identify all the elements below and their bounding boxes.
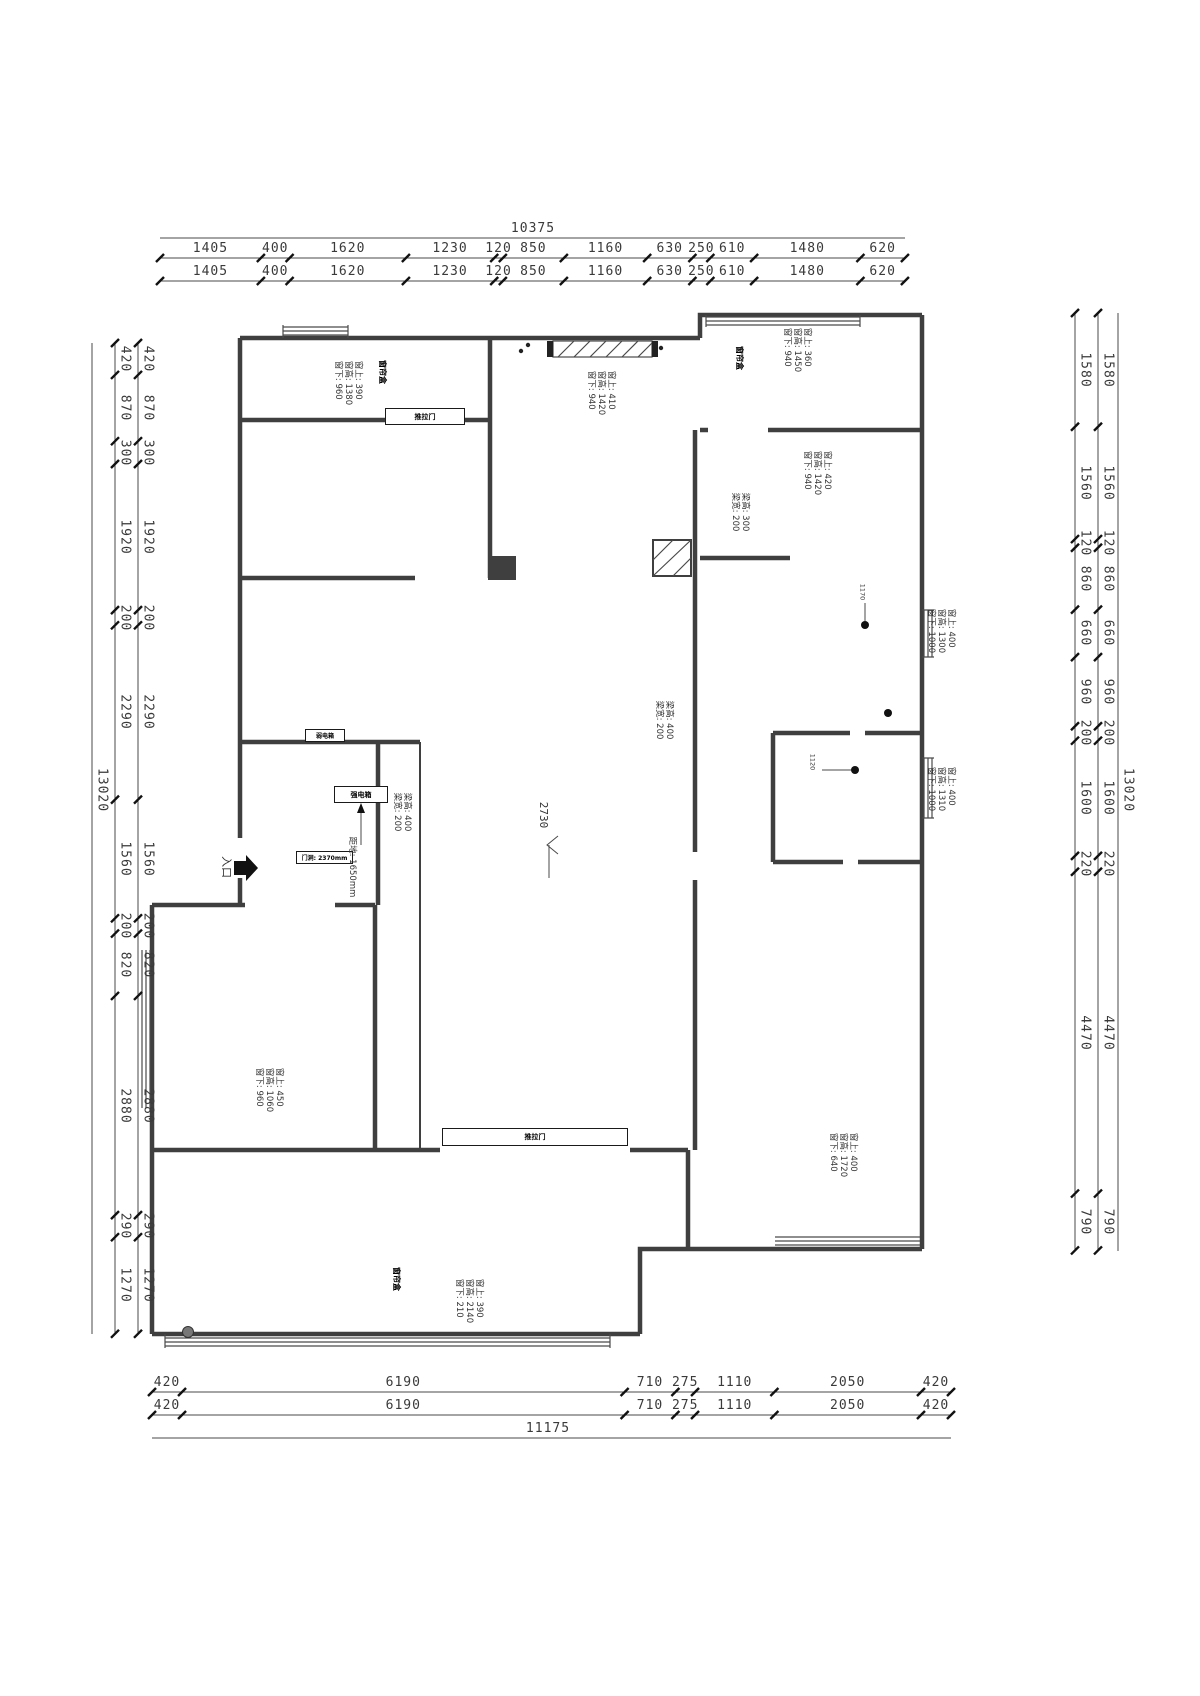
dim-label-top-0-11: 620 <box>869 241 895 256</box>
annotation-beam-center-left: 梁高: 400梁宽: 200 <box>392 793 412 832</box>
dim-label-top-0-1: 400 <box>262 241 288 256</box>
hatched-window-end-right <box>652 341 658 357</box>
dim-label-top-0-4: 120 <box>485 241 511 256</box>
dim-label-right-0-2: 120 <box>1078 530 1093 556</box>
wall-step-bottom <box>640 1150 688 1334</box>
annotation-line: 梁宽: 200 <box>730 493 740 532</box>
annotation-line: 窗上: 400 <box>848 1133 858 1177</box>
annotation-line: 窗下: 960 <box>254 1068 264 1112</box>
dim-total-bottom: 11175 <box>526 1421 570 1436</box>
annotation-line: 1170 <box>859 584 866 601</box>
annotation-line: 窗高: 1380 <box>343 361 353 405</box>
annotation-rm1-window: 窗上: 400窗高: 1300窗下: 1000 <box>926 609 956 653</box>
dim-label-bottom-1-4: 1110 <box>717 1398 752 1413</box>
annotation-br-window: 窗上: 400窗高: 1720窗下: 640 <box>828 1133 858 1177</box>
dim-label-right-1-4: 660 <box>1101 620 1116 646</box>
socket-dot-3 <box>659 346 663 350</box>
dim-label-right-0-5: 960 <box>1078 678 1093 704</box>
annotation-light-dist-2: 1120 <box>809 754 816 771</box>
dim-label-right-1-5: 960 <box>1101 678 1116 704</box>
light-dot-3 <box>884 709 892 717</box>
dim-label-top-0-5: 850 <box>520 241 546 256</box>
annotation-line: 梁高: 400 <box>402 793 412 832</box>
annotation-line: 梁高: 300 <box>740 493 750 532</box>
dim-label-top-1-2: 1620 <box>330 264 365 279</box>
annotation-line: 窗上: 360 <box>802 328 812 372</box>
dim-label-right-1-0: 1580 <box>1101 352 1116 387</box>
dim-label-left-0-8: 820 <box>118 951 133 977</box>
annotation-line: 窗帘盒 <box>377 360 387 384</box>
dim-label-bottom-0-6: 420 <box>923 1375 949 1390</box>
dim-label-bottom-0-4: 1110 <box>717 1375 752 1390</box>
annotation-line: 窗高: 1720 <box>838 1133 848 1177</box>
annotation-line: 窗上: 400 <box>946 767 956 811</box>
annotation-line: 窗高: 1420 <box>812 451 822 495</box>
light-dot-2 <box>851 766 859 774</box>
light-dot-1 <box>861 621 869 629</box>
dim-label-top-0-2: 1620 <box>330 241 365 256</box>
sliding-door-label-top: 推拉门 <box>385 408 465 425</box>
dim-label-top-0-7: 630 <box>657 241 683 256</box>
annotation-line: 窗上: 390 <box>353 361 363 405</box>
hatched-window-strip <box>553 341 652 357</box>
weak-elec-box-label: 弱电箱 <box>305 729 345 742</box>
dim-label-left-1-2: 300 <box>141 439 156 465</box>
annotation-light-dist-1: 1170 <box>859 584 866 601</box>
dim-label-left-0-11: 1270 <box>118 1268 133 1303</box>
socket-dot-1 <box>519 349 523 353</box>
dim-label-top-0-3: 1230 <box>432 241 467 256</box>
annotation-line: 窗上: 410 <box>606 371 616 415</box>
dim-label-left-0-3: 1920 <box>118 519 133 554</box>
dim-label-left-1-0: 420 <box>141 346 156 372</box>
dim-label-bottom-1-0: 420 <box>154 1398 180 1413</box>
annotation-level-mark: 2730 <box>538 802 548 829</box>
dim-label-right-1-2: 120 <box>1101 530 1116 556</box>
dim-label-right-1-10: 790 <box>1101 1209 1116 1235</box>
dim-label-left-1-3: 1920 <box>141 519 156 554</box>
annotation-rm2-window: 窗上: 400窗高: 1310窗下: 1000 <box>926 767 956 811</box>
dim-label-left-0-9: 2880 <box>118 1088 133 1123</box>
dim-label-left-1-7: 200 <box>141 913 156 939</box>
dim-label-top-1-5: 850 <box>520 264 546 279</box>
dim-label-top-1-0: 1405 <box>193 264 228 279</box>
door-opening-label: 门洞: 2370mm <box>296 851 353 864</box>
annotation-line: 梁宽: 200 <box>392 793 402 832</box>
dim-label-top-1-10: 1480 <box>790 264 825 279</box>
annotation-line: 窗高: 1450 <box>792 328 802 372</box>
dim-label-top-1-11: 620 <box>869 264 895 279</box>
dim-label-left-1-9: 2880 <box>141 1088 156 1123</box>
dim-label-right-0-8: 220 <box>1078 851 1093 877</box>
dim-label-left-0-6: 1560 <box>118 841 133 876</box>
dim-label-right-0-4: 660 <box>1078 620 1093 646</box>
annotation-line: 窗下: 210 <box>454 1279 464 1323</box>
annotation-line: 窗高: 1420 <box>596 371 606 415</box>
annotation-line: 窗上: 450 <box>274 1068 284 1112</box>
entrance-arrow <box>234 855 258 881</box>
dim-label-top-0-9: 610 <box>719 241 745 256</box>
dim-label-right-0-1: 1560 <box>1078 465 1093 500</box>
annotation-line: 梁宽: 200 <box>654 701 664 740</box>
annotation-line: 窗上: 420 <box>822 451 832 495</box>
dim-label-top-0-8: 250 <box>688 241 714 256</box>
annotation-curtain-b: 窗帘盒 <box>391 1267 401 1291</box>
dim-label-right-0-0: 1580 <box>1078 352 1093 387</box>
dim-label-right-0-9: 4470 <box>1078 1015 1093 1050</box>
dim-label-right-1-6: 200 <box>1101 720 1116 746</box>
dim-label-bottom-0-3: 275 <box>672 1375 698 1390</box>
dim-label-right-1-1: 1560 <box>1101 465 1116 500</box>
annotation-beam-bath: 梁高: 300梁宽: 200 <box>730 493 750 532</box>
annotation-line: 窗高: 1060 <box>264 1068 274 1112</box>
annotation-above-floor: 距地: 1650mm <box>347 837 357 898</box>
dim-label-right-1-9: 4470 <box>1101 1015 1116 1050</box>
dim-label-left-0-4: 200 <box>118 604 133 630</box>
dim-label-top-1-7: 630 <box>657 264 683 279</box>
dim-label-bottom-1-5: 2050 <box>830 1398 865 1413</box>
annotation-line: 窗帘盒 <box>391 1267 401 1291</box>
annotation-tr-window: 窗上: 360窗高: 1450窗下: 940 <box>782 328 812 372</box>
annotation-beam-center-right: 梁高: 400梁宽: 200 <box>654 701 674 740</box>
annotation-r1-window: 窗上: 420窗高: 1420窗下: 940 <box>802 451 832 495</box>
window-bottom-right <box>775 1237 920 1245</box>
dim-label-right-1-7: 1600 <box>1101 781 1116 816</box>
annotation-entrance: 入口 <box>221 856 231 878</box>
dim-label-top-0-6: 1160 <box>588 241 623 256</box>
wall-right-mid-1 <box>773 733 922 862</box>
dim-label-right-0-10: 790 <box>1078 1209 1093 1235</box>
dim-label-left-0-1: 870 <box>118 395 133 421</box>
socket-dot-2 <box>526 343 530 347</box>
dim-label-right-1-3: 860 <box>1101 565 1116 591</box>
level-mark-symbol <box>547 836 558 878</box>
annotation-line: 窗高: 1310 <box>936 767 946 811</box>
dim-total-top: 10375 <box>511 221 555 236</box>
dim-label-left-1-11: 1270 <box>141 1268 156 1303</box>
dim-label-top-1-4: 120 <box>485 264 511 279</box>
hatched-window-end-left <box>547 341 553 357</box>
annotation-line: 窗下: 960 <box>333 361 343 405</box>
dim-label-left-1-4: 200 <box>141 604 156 630</box>
annotation-line: 1120 <box>809 754 816 771</box>
annotation-curtain-tr: 窗帘盒 <box>734 346 744 370</box>
dim-label-top-1-3: 1230 <box>432 264 467 279</box>
dim-label-bottom-0-0: 420 <box>154 1375 180 1390</box>
dim-label-left-0-7: 200 <box>118 913 133 939</box>
annotation-line: 窗帘盒 <box>734 346 744 370</box>
column-block <box>488 556 516 580</box>
dim-label-left-0-10: 290 <box>118 1213 133 1239</box>
floor-drain <box>183 1327 194 1338</box>
dim-label-bottom-1-6: 420 <box>923 1398 949 1413</box>
floor-plan-page: 10375 11175 13020 13020 推拉门 推拉门 强电箱 弱电箱 … <box>0 0 1200 1696</box>
annotation-tm-window: 窗上: 410窗高: 1420窗下: 940 <box>586 371 616 415</box>
annotation-line: 梁高: 400 <box>664 701 674 740</box>
flue-shaft-diagonals <box>653 540 691 576</box>
dim-label-right-0-6: 200 <box>1078 720 1093 746</box>
dim-label-bottom-1-3: 275 <box>672 1398 698 1413</box>
annotation-tl-window: 窗上: 390窗高: 1380窗下: 960 <box>333 361 363 405</box>
dim-label-top-1-9: 610 <box>719 264 745 279</box>
sliding-door-label-bottom: 推拉门 <box>442 1128 628 1146</box>
window-top-right <box>706 315 860 327</box>
strong-elec-box-label: 强电箱 <box>334 786 388 803</box>
dim-label-left-0-0: 420 <box>118 346 133 372</box>
dimension-ticks <box>111 254 1102 1419</box>
annotation-line: 距地: 1650mm <box>347 837 357 898</box>
dim-label-right-1-8: 220 <box>1101 851 1116 877</box>
dim-label-bottom-1-2: 710 <box>637 1398 663 1413</box>
dim-label-top-1-1: 400 <box>262 264 288 279</box>
annotation-line: 窗下: 940 <box>586 371 596 415</box>
annotation-curtain-tl: 窗帘盒 <box>377 360 387 384</box>
dim-label-right-0-3: 860 <box>1078 565 1093 591</box>
annotation-bl-window: 窗上: 450窗高: 1060窗下: 960 <box>254 1068 284 1112</box>
annotation-line: 窗下: 1000 <box>926 609 936 653</box>
annotation-line: 窗上: 390 <box>474 1279 484 1323</box>
annotation-line: 窗上: 400 <box>946 609 956 653</box>
annotation-line: 窗下: 940 <box>802 451 812 495</box>
dim-label-left-1-6: 1560 <box>141 841 156 876</box>
dim-label-top-1-8: 250 <box>688 264 714 279</box>
dim-label-top-1-6: 1160 <box>588 264 623 279</box>
dim-label-bottom-0-2: 710 <box>637 1375 663 1390</box>
elec-box-arrowhead <box>357 803 365 813</box>
annotation-line: 窗下: 1000 <box>926 767 936 811</box>
dim-label-left-1-8: 820 <box>141 951 156 977</box>
dim-label-bottom-0-5: 2050 <box>830 1375 865 1390</box>
annotation-line: 窗高: 2140 <box>464 1279 474 1323</box>
dim-label-left-1-1: 870 <box>141 395 156 421</box>
annotation-line: 2730 <box>538 802 548 829</box>
dim-label-right-0-7: 1600 <box>1078 781 1093 816</box>
annotation-line: 窗下: 640 <box>828 1133 838 1177</box>
dim-label-left-1-5: 2290 <box>141 695 156 730</box>
dim-label-left-0-2: 300 <box>118 439 133 465</box>
annotation-line: 入口 <box>221 856 231 878</box>
dim-label-top-0-10: 1480 <box>790 241 825 256</box>
hatched-window-hatch <box>558 341 652 357</box>
dim-label-bottom-1-1: 6190 <box>386 1398 421 1413</box>
annotation-b-window: 窗上: 390窗高: 2140窗下: 210 <box>454 1279 484 1323</box>
dim-label-top-0-0: 1405 <box>193 241 228 256</box>
dim-label-left-1-10: 290 <box>141 1213 156 1239</box>
annotation-line: 窗下: 940 <box>782 328 792 372</box>
dim-label-left-0-5: 2290 <box>118 695 133 730</box>
dim-total-right: 13020 <box>1121 768 1136 812</box>
dim-total-left: 13020 <box>95 768 110 812</box>
annotation-line: 窗高: 1300 <box>936 609 946 653</box>
dim-label-bottom-0-1: 6190 <box>386 1375 421 1390</box>
